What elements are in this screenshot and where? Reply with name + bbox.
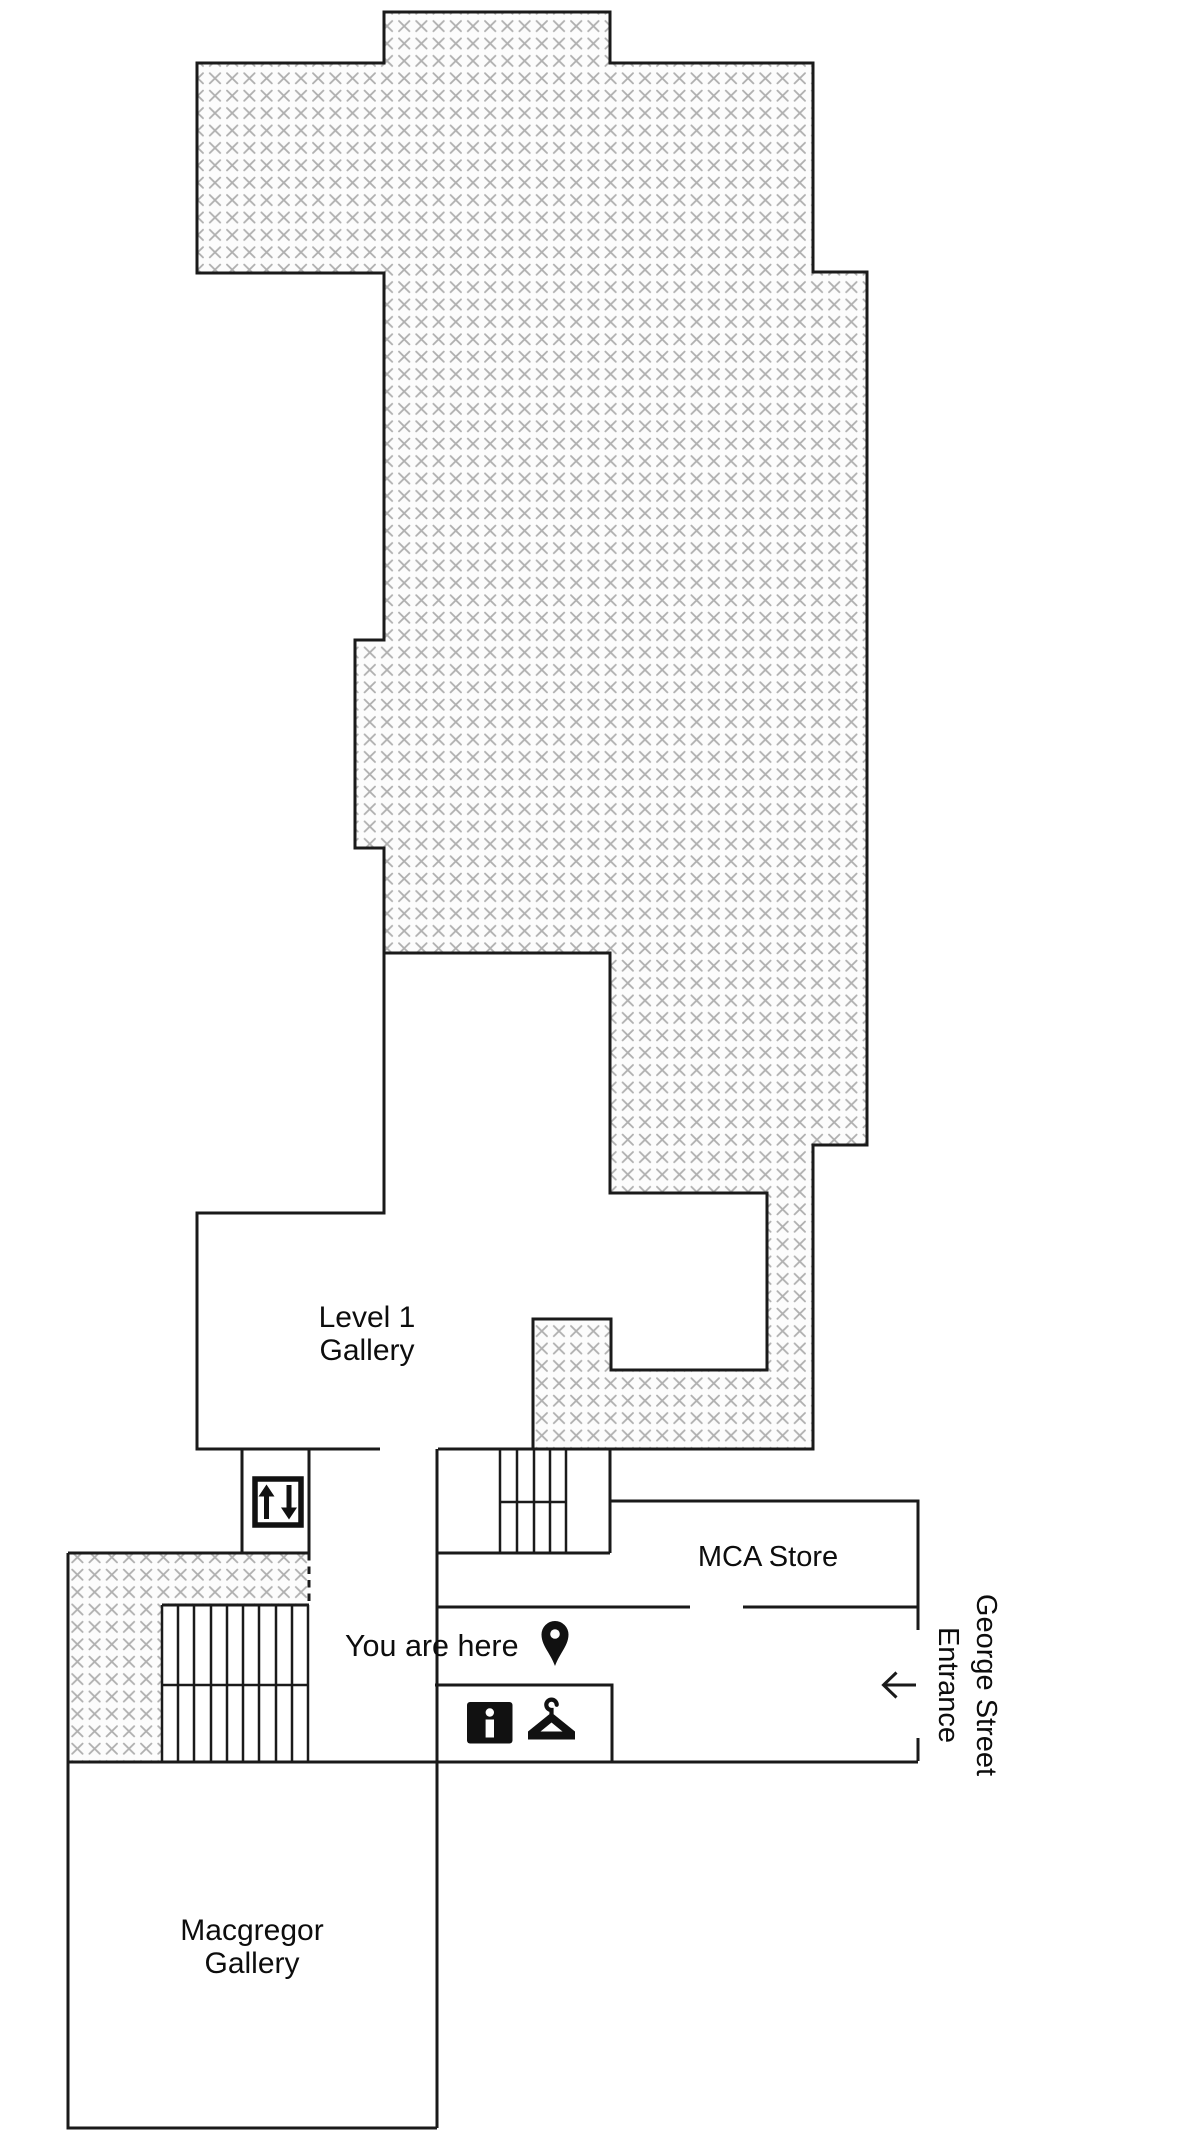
location-pin-icon	[542, 1621, 569, 1666]
left-arrow-icon	[884, 1673, 917, 1698]
hatched-area-main	[197, 12, 867, 1449]
hatched-area-left	[68, 1553, 309, 1762]
amenities-room-walls	[435, 1685, 612, 1762]
level1-gallery-label-line2: Gallery	[319, 1334, 414, 1367]
floor-plan-svg: Level 1 Gallery MCA Store You are here M…	[0, 0, 1200, 2143]
george-street-entrance-label: George Street Entrance	[932, 1594, 1002, 1776]
george-street-label-line2: Entrance	[932, 1627, 964, 1743]
you-are-here-label: You are here	[345, 1629, 519, 1663]
elevator-icon	[255, 1479, 301, 1525]
info-icon	[467, 1702, 513, 1744]
stairs-left	[162, 1605, 308, 1762]
stairs-center	[500, 1449, 566, 1553]
george-street-label-line1: George Street	[970, 1594, 1002, 1776]
coat-hanger-icon	[528, 1700, 575, 1740]
mca-store-label: MCA Store	[698, 1541, 838, 1573]
macgregor-gallery-label-line1: Macgregor	[180, 1914, 323, 1947]
macgregor-gallery-label-line2: Gallery	[204, 1947, 299, 1980]
level1-gallery-walls	[197, 953, 533, 1449]
corridor-walls	[437, 1449, 610, 2128]
floor-plan-map: Level 1 Gallery MCA Store You are here M…	[0, 0, 1200, 2143]
level1-gallery-label-line1: Level 1	[319, 1301, 416, 1334]
